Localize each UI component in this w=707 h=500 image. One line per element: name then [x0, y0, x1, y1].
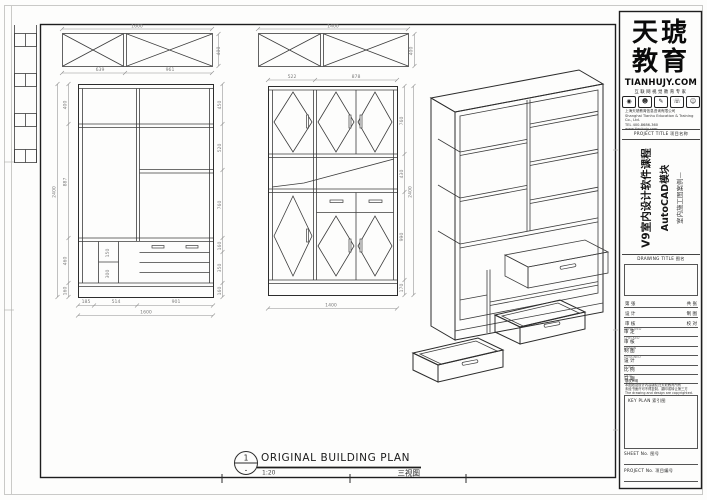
left-reference-strip	[15, 25, 37, 163]
view-title: 1 - ORIGINAL BUILDING PLAN 1:20 三视图	[235, 452, 422, 478]
door-handle	[307, 115, 309, 128]
reference-box	[15, 34, 37, 47]
field-row: 审 核 校 对	[624, 318, 698, 328]
door-handle	[349, 115, 351, 128]
front-elevation-left	[56, 82, 225, 318]
camera-icon: ◉	[622, 96, 636, 108]
field-row: DESIGNED 设 计	[624, 356, 698, 365]
dim-label: 160	[63, 287, 69, 296]
drawer-handle	[369, 200, 382, 203]
door-swing-mark	[358, 92, 392, 152]
sheet-no-row: SHEET No. 图号	[624, 451, 698, 465]
brand-logo-line1: 天琥	[620, 19, 702, 47]
dim-label: 2400	[408, 186, 414, 198]
field-label: 审 核	[625, 321, 635, 327]
dim-label: 878	[352, 74, 361, 80]
dim-label: 150	[105, 249, 111, 258]
dim-label: 450	[217, 101, 223, 110]
door-handle	[360, 239, 362, 252]
field-label: 审 核	[624, 341, 698, 346]
field-label: 制 图	[687, 311, 697, 317]
drawing-sheet: 1600 639 961 400 1400 400 185 514 901 16…	[0, 0, 707, 500]
key-plan-box: KEY PLAN 索引图	[624, 395, 698, 449]
reference-box	[15, 150, 37, 163]
field-label: 设 计	[624, 360, 698, 365]
detail-bubble-number: 1	[244, 454, 249, 463]
dim-label: 400	[216, 47, 222, 56]
dim-label: 160	[217, 242, 223, 251]
door-handle	[360, 115, 362, 128]
sloped-panel-line	[272, 159, 394, 187]
dim-label: 760	[217, 201, 223, 210]
door-handle	[307, 229, 309, 242]
reference-box	[15, 74, 37, 87]
key-plan-caption: KEY PLAN 索引图	[628, 398, 666, 404]
divider	[622, 139, 700, 140]
field-label: 第 张	[625, 301, 635, 307]
dim-label: 1600	[140, 310, 152, 316]
drawer-handle	[462, 360, 478, 366]
view-title-text: ORIGINAL BUILDING PLAN	[261, 452, 410, 464]
field-label: 制 图	[624, 350, 698, 355]
dim-label: 2400	[52, 186, 58, 198]
cad-linework: 1600 639 961 400 1400 400 185 514 901 16…	[0, 0, 707, 500]
drawing-title-caption: DRAWING TITLE 图名	[620, 256, 702, 262]
field-row: APPROVED 审 定	[624, 328, 698, 337]
loose-drawer-1	[495, 300, 585, 344]
field-label: 共 张	[687, 301, 697, 307]
reference-box	[15, 114, 37, 127]
door-swing-mark	[318, 216, 354, 276]
brand-website: TIANHUJY.COM	[620, 78, 702, 88]
pencil-icon: ✎	[654, 96, 668, 108]
dim-label: 514	[112, 299, 121, 305]
door-swing-mark	[358, 216, 392, 276]
title-block-fields: 第 张 共 张 设 计 制 图 审 核 校 对 APPROVED 审 定 CHE…	[624, 298, 698, 384]
brand-icon-row: ◉ ☻ ✎ ☏ ☺	[620, 96, 702, 108]
dim-label: 760	[399, 117, 405, 126]
dim-label: 990	[399, 233, 405, 242]
dim-label: 400	[409, 47, 415, 56]
copyright-notes: 版权声明 本图纸及设计内容版权归天琥教育所有 未经书面许可不得复制、翻印或转让第…	[625, 380, 698, 396]
dimension-labels: 1600 639 961 400 1400 400 185 514 901 16…	[52, 24, 415, 316]
field-row: CHECKED 审 核	[624, 337, 698, 346]
project-title-sub: AutoCAD模块	[657, 165, 671, 231]
view-scale: 1:20	[262, 470, 276, 477]
field-row: 设 计 制 图	[624, 308, 698, 318]
field-row: 第 张 共 张	[624, 298, 698, 308]
smiley-icon: ☺	[686, 96, 700, 108]
brand-tagline: 互联网视觉教育专家	[620, 89, 702, 95]
company-line: Shanghai Tianhu Education & Training Co.…	[625, 114, 697, 123]
phone-icon: ☏	[670, 96, 684, 108]
door-handle	[349, 239, 351, 252]
project-title-caption: PROJECT TITLE 项目名称	[620, 131, 702, 137]
top-view-1	[60, 27, 221, 75]
top-view-2	[256, 27, 417, 68]
dim-label: 170	[399, 284, 405, 293]
dim-label: 350	[217, 264, 223, 273]
drawer-handle	[560, 264, 576, 270]
dim-label: 160	[217, 287, 223, 296]
divider	[622, 254, 700, 255]
dim-label: 1400	[327, 24, 339, 30]
dim-label: 1600	[131, 24, 143, 30]
people-icon: ☻	[638, 96, 652, 108]
title-block: 天琥 教育 TIANHUJY.COM 互联网视觉教育专家 ◉ ☻ ✎ ☏ ☺ 上…	[620, 11, 702, 488]
drawer-handle	[330, 200, 343, 203]
drawer-handle	[152, 246, 164, 249]
door-swing-mark	[318, 92, 354, 152]
field-label: 设 计	[625, 311, 635, 317]
dim-label: 460	[63, 257, 69, 266]
isometric-view	[431, 70, 608, 340]
dim-label: 522	[288, 74, 297, 80]
field-label: 比 例	[624, 369, 698, 374]
front-elevation-middle	[266, 78, 416, 311]
dim-label: 901	[172, 299, 181, 305]
dim-label: 300	[105, 270, 111, 279]
loose-drawer-2	[413, 338, 503, 382]
open-drawer	[505, 240, 608, 288]
project-title-main: V9室内设计软件课程	[639, 148, 654, 247]
field-label: 校 对	[687, 321, 697, 327]
field-row: SCALE 比 例	[624, 366, 698, 375]
project-title-note: 室内施工图案例—	[674, 172, 684, 224]
project-no-row: PROJECT No. 项目编号	[624, 468, 698, 482]
drawer-handle	[186, 246, 198, 249]
divider	[622, 129, 700, 130]
detail-bubble-ref: -	[245, 466, 248, 475]
dim-label: 1400	[325, 303, 337, 309]
dim-label: 520	[217, 144, 223, 153]
drawing-title-box	[624, 264, 698, 296]
dim-label: 887	[63, 178, 69, 187]
dim-label: 639	[96, 67, 105, 73]
dim-label: 430	[399, 170, 405, 179]
brand-logo-line2: 教育	[620, 48, 702, 76]
field-label: 审 定	[624, 331, 698, 336]
field-row: DRAWN 制 图	[624, 347, 698, 356]
view-caption: 三视图	[398, 468, 421, 478]
dim-label: 185	[82, 299, 91, 305]
dim-label: 400	[63, 101, 69, 110]
dim-label: 961	[166, 67, 175, 73]
